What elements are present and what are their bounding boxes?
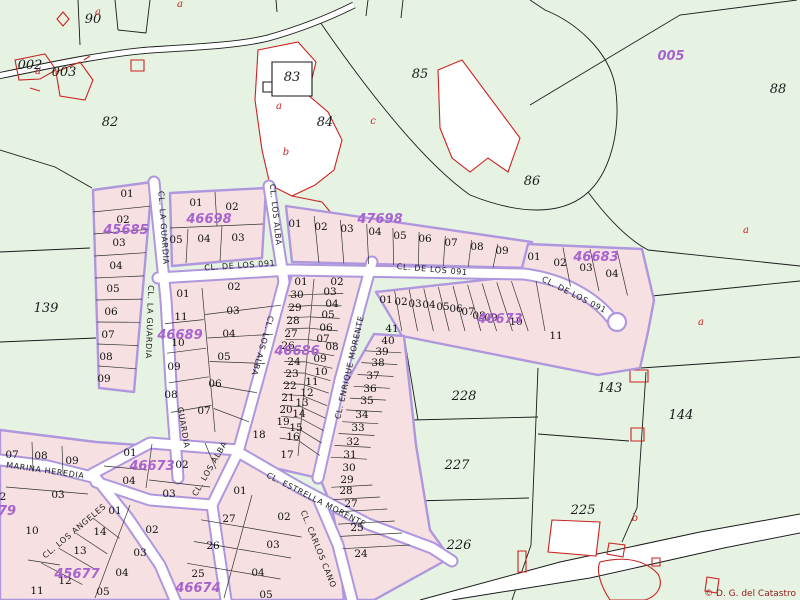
parcel-11: 11: [30, 585, 43, 597]
parcel-23: 23: [285, 368, 298, 380]
ref-letter-a: a: [35, 66, 41, 77]
parcel-29: 29: [288, 302, 301, 314]
parcel-07: 07: [197, 405, 210, 417]
parcel-02: 02: [145, 524, 158, 536]
parcel-08: 08: [470, 241, 483, 253]
parcel-01: 01: [527, 251, 540, 263]
parcel-27: 27: [284, 328, 297, 340]
parcel-02: 02: [314, 221, 327, 233]
parcel-03: 03: [133, 547, 146, 559]
parcel-03: 03: [408, 298, 421, 310]
cul-de-sac-bulb: [608, 313, 626, 331]
block-code-46686: 46686: [273, 344, 319, 359]
parcel-01: 01: [233, 485, 246, 497]
parcel-36: 36: [363, 383, 377, 395]
parcel-31: 31: [343, 449, 356, 461]
parcel-27: 27: [344, 498, 357, 510]
parcel-05: 05: [217, 351, 230, 363]
rural-parcel-82: 82: [102, 115, 119, 130]
rural-parcel-003: 003: [52, 65, 77, 80]
parcel-27: 27: [222, 513, 235, 525]
cadastral-map[interactable]: 9000200382838485868813914314422822722622…: [0, 0, 800, 600]
block-code-46683: 46683: [572, 250, 618, 265]
ref-letter-c: c: [370, 116, 376, 127]
parcel-18: 18: [252, 429, 265, 441]
rural-parcel-228: 228: [451, 389, 477, 404]
parcel-05: 05: [436, 301, 449, 313]
block-code-45677: 45677: [53, 567, 100, 582]
block-code-47698: 47698: [356, 212, 402, 227]
parcel-26: 26: [206, 540, 220, 552]
parcel-10: 10: [25, 525, 38, 537]
parcel-06: 06: [418, 233, 432, 245]
parcel-41: 41: [385, 323, 398, 335]
rural-parcel-227: 227: [444, 458, 471, 473]
parcel-04: 04: [122, 475, 136, 487]
parcel-08: 08: [164, 389, 177, 401]
ref-letter-a: a: [276, 101, 282, 112]
parcel-24: 24: [354, 548, 368, 560]
parcel-19: 19: [276, 416, 289, 428]
parcel-21: 21: [281, 392, 294, 404]
parcel-01: 01: [189, 197, 202, 209]
parcel-03: 03: [226, 305, 239, 317]
rural-parcel-226: 226: [446, 538, 472, 553]
parcel-03: 03: [266, 539, 279, 551]
rural-parcel-86: 86: [524, 174, 541, 189]
parcel-17: 17: [280, 449, 293, 461]
parcel-01: 01: [176, 288, 189, 300]
parcel-01: 01: [123, 447, 136, 459]
copyright-notice: © D. G. del Catastro: [704, 589, 796, 599]
rural-parcel-139: 139: [34, 301, 59, 316]
parcel-07: 07: [101, 329, 114, 341]
parcel-04: 04: [109, 260, 123, 272]
parcel-05: 05: [259, 589, 272, 600]
ref-letter-b: b: [283, 147, 289, 158]
block-code-46689: 46689: [156, 328, 202, 343]
parcel-03: 03: [323, 286, 336, 298]
ref-letter-b: b: [632, 513, 638, 524]
cadastral-map-viewport[interactable]: 9000200382838485868813914314422822722622…: [0, 0, 800, 600]
rural-parcel-88: 88: [770, 82, 787, 97]
parcel-28: 28: [339, 485, 352, 497]
parcel-04: 04: [368, 226, 382, 238]
ref-letter-a: a: [743, 225, 749, 236]
parcel-02: 02: [553, 257, 566, 269]
block-code-46673: 46673: [128, 459, 174, 474]
parcel-14: 14: [292, 408, 306, 420]
parcel-30: 30: [342, 462, 355, 474]
rural-parcel-83: 83: [284, 70, 301, 85]
ref-letter-a: a: [177, 0, 183, 10]
parcel-22: 22: [283, 380, 296, 392]
block-code-46674: 46674: [174, 581, 220, 596]
parcel-04: 04: [222, 328, 236, 340]
parcel-04: 04: [251, 567, 265, 579]
rural-parcel-144: 144: [669, 408, 694, 423]
block-code-45685: 45685: [102, 223, 148, 238]
block-46698: [170, 188, 266, 266]
parcel-30: 30: [290, 289, 303, 301]
parcel-01: 01: [288, 218, 301, 230]
parcel-07: 07: [5, 449, 18, 461]
rural-parcel-85: 85: [412, 67, 429, 82]
parcel-03: 03: [112, 237, 125, 249]
parcel-04: 04: [605, 268, 619, 280]
parcel-14: 14: [93, 526, 107, 538]
parcel-09: 09: [65, 455, 78, 467]
parcel-02: 02: [175, 459, 188, 471]
parcel-20: 20: [279, 404, 292, 416]
parcel-09: 09: [495, 245, 508, 257]
parcel-05: 05: [106, 283, 119, 295]
rural-parcel-84: 84: [317, 115, 334, 130]
parcel-03: 03: [162, 488, 175, 500]
parcel-08: 08: [99, 351, 112, 363]
parcel-05: 05: [96, 586, 109, 598]
parcel-06: 06: [208, 378, 222, 390]
parcel-35: 35: [360, 395, 373, 407]
parcel-06: 06: [104, 306, 118, 318]
parcel-05: 05: [169, 234, 182, 246]
parcel-02: 02: [227, 281, 240, 293]
parcel-11: 11: [174, 311, 187, 323]
parcel-01: 01: [108, 505, 121, 517]
parcel-09: 09: [167, 361, 180, 373]
ref-letter-a: a: [95, 7, 101, 18]
parcel-03: 03: [51, 489, 64, 501]
parcel-37: 37: [366, 370, 379, 382]
block-code-005: 005: [657, 49, 684, 64]
parcel-28: 28: [286, 315, 299, 327]
parcel-03: 03: [231, 232, 244, 244]
parcel-04: 04: [115, 567, 129, 579]
parcel-02: 02: [277, 511, 290, 523]
parcel-16: 16: [286, 431, 300, 443]
parcel-13: 13: [73, 545, 86, 557]
parcel-02: 02: [394, 296, 407, 308]
parcel-34: 34: [355, 409, 369, 421]
rural-parcel-143: 143: [598, 381, 623, 396]
parcel-01: 01: [379, 294, 392, 306]
parcel-05: 05: [321, 309, 334, 321]
parcel-01: 01: [294, 276, 307, 288]
parcel-11: 11: [549, 330, 562, 342]
parcel-04: 04: [422, 299, 436, 311]
parcel-08: 08: [325, 341, 338, 353]
parcel-25: 25: [191, 568, 204, 580]
parcel-32: 32: [346, 436, 359, 448]
rural-parcel-225: 225: [570, 503, 596, 518]
parcel-07: 07: [444, 237, 457, 249]
parcel-04: 04: [197, 233, 211, 245]
parcel-2: 2: [0, 491, 6, 503]
parcel-33: 33: [351, 422, 364, 434]
parcel-09: 09: [97, 373, 110, 385]
block-code-79: 79: [0, 504, 16, 519]
block-code-46673: 46673: [476, 312, 522, 327]
parcel-05: 05: [393, 230, 406, 242]
parcel-38: 38: [371, 357, 384, 369]
parcel-03: 03: [340, 223, 353, 235]
block-code-46698: 46698: [185, 212, 231, 227]
parcel-01: 01: [120, 188, 133, 200]
parcel-08: 08: [34, 450, 47, 462]
ref-letter-a: a: [698, 317, 704, 328]
